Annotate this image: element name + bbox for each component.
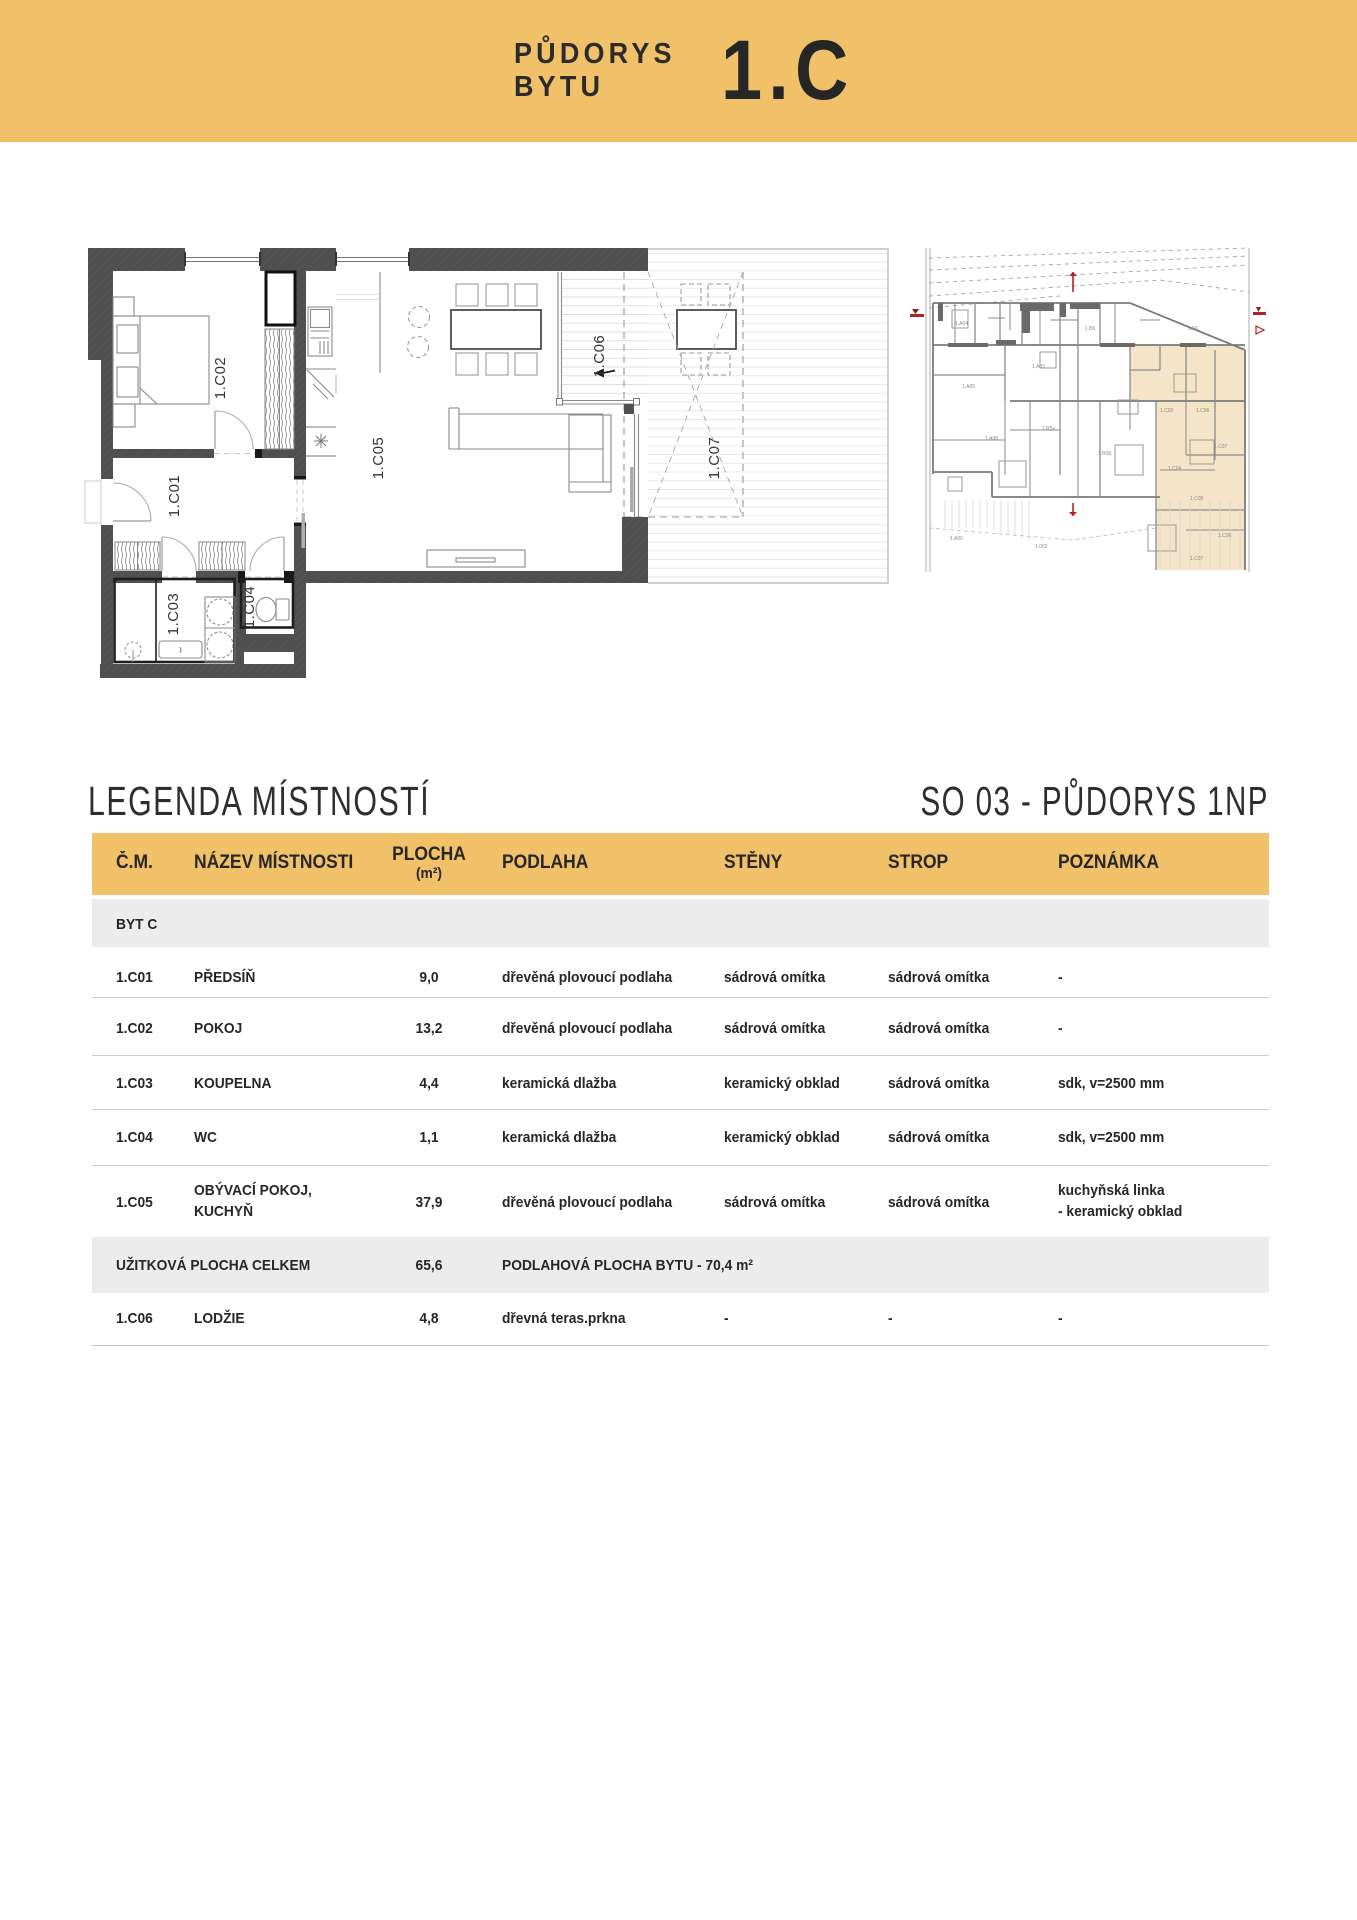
svg-text:1.66: 1.66: [1188, 326, 1198, 332]
svg-text:1.C06: 1.C06: [1218, 533, 1232, 539]
svg-text:1.A04: 1.A04: [955, 321, 968, 327]
svg-text:1.A03: 1.A03: [1032, 364, 1045, 370]
svg-text:1.C07: 1.C07: [1190, 556, 1204, 562]
svg-text:1.002: 1.002: [1035, 544, 1048, 550]
svg-text:1.C02: 1.C02: [1160, 408, 1174, 414]
svg-text:1.R05: 1.R05: [1098, 451, 1112, 457]
svg-text:1.C07: 1.C07: [1214, 444, 1228, 450]
svg-text:1.C06: 1.C06: [591, 335, 608, 378]
svg-text:1.B6: 1.B6: [1085, 326, 1096, 332]
svg-text:1.C05: 1.C05: [1190, 496, 1204, 502]
svg-text:1.C04: 1.C04: [1168, 466, 1182, 472]
svg-text:1.A08: 1.A08: [985, 436, 998, 442]
svg-text:1.R5x: 1.R5x: [1042, 426, 1056, 432]
svg-text:1.A05: 1.A05: [962, 384, 975, 390]
svg-text:1.C01: 1.C01: [166, 475, 183, 518]
svg-text:1.A06: 1.A06: [950, 536, 963, 542]
svg-text:1.C04: 1.C04: [241, 586, 258, 629]
svg-text:1.C03: 1.C03: [165, 593, 182, 636]
svg-text:1.C02: 1.C02: [212, 357, 229, 400]
svg-text:1.C06: 1.C06: [1196, 408, 1210, 414]
svg-text:1.C05: 1.C05: [370, 437, 387, 480]
